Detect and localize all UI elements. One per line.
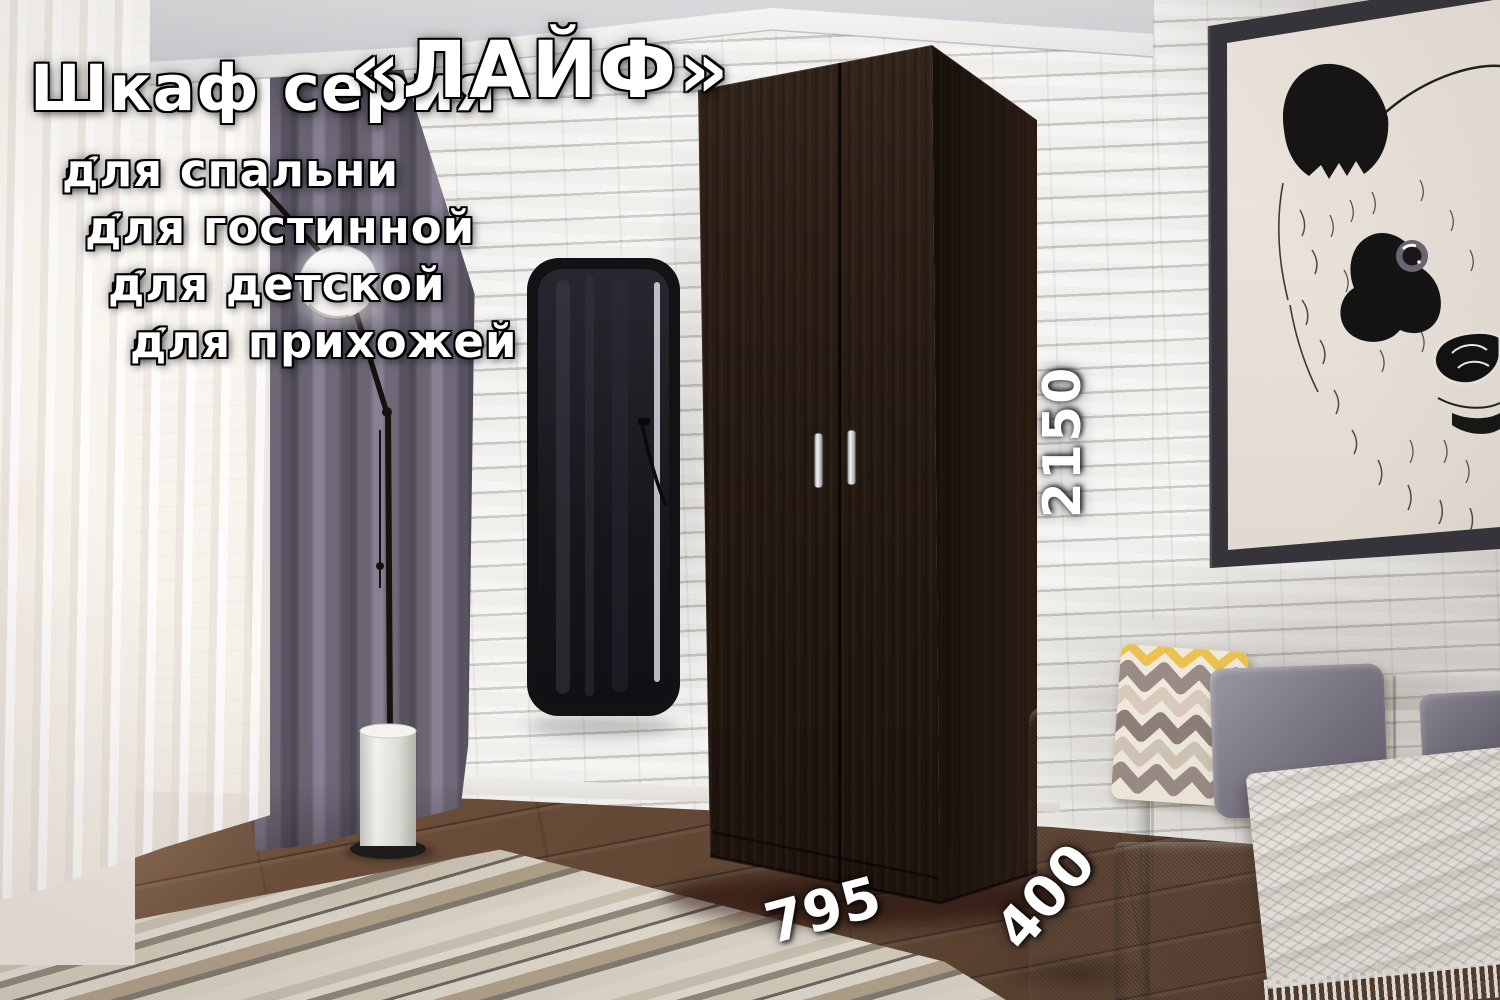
room-scene: Шкаф серия «ЛАЙФ» ✔ для спальни ✔ для го… <box>0 0 1500 1000</box>
dimension-depth-label: 400 <box>983 832 1109 963</box>
product-series-name: «ЛАЙФ» <box>350 26 731 116</box>
marketing-overlay: Шкаф серия «ЛАЙФ» ✔ для спальни ✔ для го… <box>0 0 1500 1000</box>
feature-label: для прихожей <box>130 317 517 367</box>
feature-label: для гостинной <box>85 203 475 253</box>
dimension-height-label: 2150 <box>1033 366 1093 519</box>
dimension-width-label: 795 <box>758 864 888 957</box>
feature-label: для спальни <box>62 146 399 196</box>
feature-label: для детской <box>108 260 445 310</box>
